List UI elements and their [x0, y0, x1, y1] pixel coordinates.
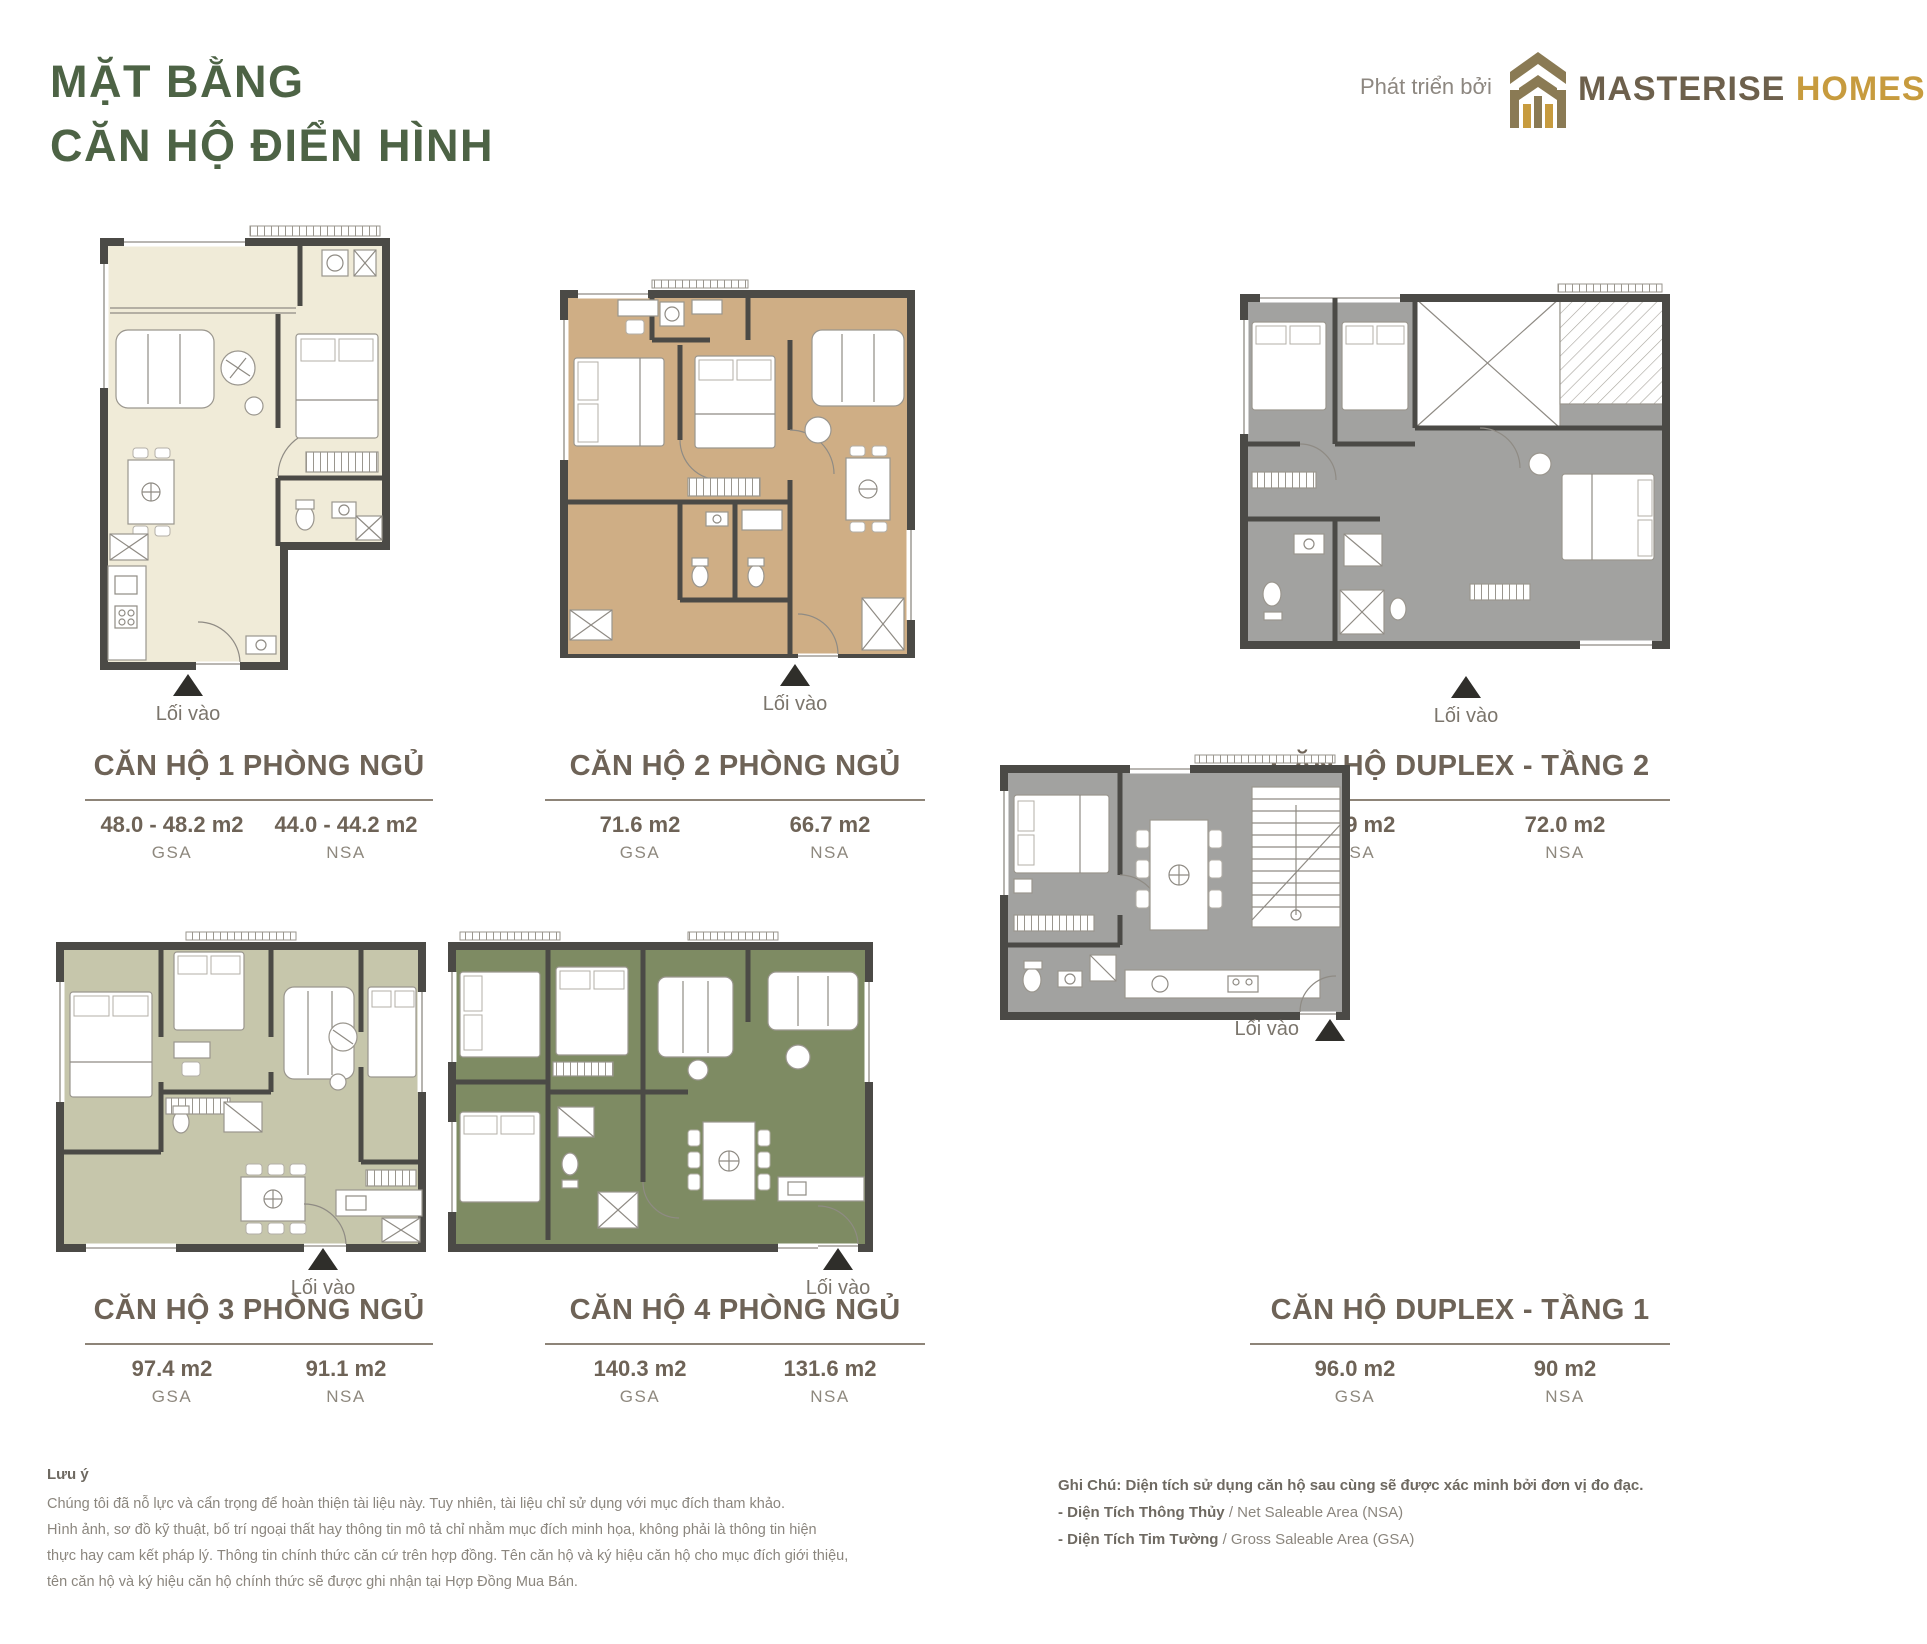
gsa-label: GSA — [85, 843, 259, 863]
nsa-label: NSA — [259, 1387, 433, 1407]
disclaimer-line: Chúng tôi đã nỗ lực và cẩn trọng để hoàn… — [47, 1491, 807, 1517]
entry-arrow-icon — [1315, 1019, 1345, 1041]
gsa-column: 96.0 m2 GSA — [1250, 1356, 1460, 1407]
nsa-column: 90 m2 NSA — [1460, 1356, 1670, 1407]
brochure-page: MẶT BẰNG CĂN HỘ ĐIỂN HÌNH Phát triển bởi… — [0, 0, 1927, 1644]
legend-item-nsa-desc: / Net Saleable Area (NSA) — [1225, 1504, 1403, 1521]
nsa-label: NSA — [735, 843, 925, 863]
brand-name-primary: MASTERISE — [1578, 70, 1785, 108]
entry-label: Lối vào — [156, 703, 221, 726]
nsa-column: 66.7 m2 NSA — [735, 812, 925, 863]
gsa-column: 48.0 - 48.2 m2 GSA — [85, 812, 259, 863]
plan-title-rule — [1250, 1343, 1670, 1345]
nsa-column: 91.1 m2 NSA — [259, 1356, 433, 1407]
entry-label: Lối vào — [1235, 1018, 1300, 1041]
entry-marker-1br: Lối vào — [128, 674, 248, 726]
gsa-value: 140.3 m2 — [545, 1356, 735, 1382]
plan-areas-1br: 48.0 - 48.2 m2 GSA 44.0 - 44.2 m2 NSA — [85, 812, 433, 863]
nsa-value: 44.0 - 44.2 m2 — [259, 812, 433, 838]
entry-arrow-icon — [1451, 676, 1481, 698]
gsa-value: 97.4 m2 — [85, 1356, 259, 1382]
plan-title-1br: CĂN HỘ 1 PHÒNG NGỦ — [85, 750, 433, 783]
nsa-label: NSA — [259, 843, 433, 863]
gsa-column: 140.3 m2 GSA — [545, 1356, 735, 1407]
legend-item-gsa-desc: / Gross Saleable Area (GSA) — [1218, 1531, 1414, 1548]
entry-label: Lối vào — [1434, 705, 1499, 728]
nsa-column: 72.0 m2 NSA — [1460, 812, 1670, 863]
plan-areas-3br: 97.4 m2 GSA 91.1 m2 NSA — [85, 1356, 433, 1407]
gsa-column: 71.6 m2 GSA — [545, 812, 735, 863]
gsa-value: 48.0 - 48.2 m2 — [85, 812, 259, 838]
nsa-value: 131.6 m2 — [735, 1356, 925, 1382]
plan-areas-duplex1: 96.0 m2 GSA 90 m2 NSA — [1250, 1356, 1670, 1407]
floor-plan-3br — [56, 930, 426, 1252]
legend-item-gsa: - Diện Tích Tim Tường / Gross Saleable A… — [1058, 1526, 1878, 1553]
floor-plan-duplex2 — [1240, 282, 1670, 649]
floor-plan-2br — [560, 278, 915, 658]
nsa-label: NSA — [1460, 843, 1670, 863]
page-title: MẶT BẰNG CĂN HỘ ĐIỂN HÌNH — [50, 50, 494, 178]
floor-plan-duplex1 — [1000, 753, 1350, 1020]
brand-name-secondary: HOMES — [1796, 70, 1926, 108]
legend-note: Ghi Chú: Diện tích sử dụng căn hộ sau cù… — [1058, 1472, 1878, 1553]
entry-arrow-icon — [780, 664, 810, 686]
legend-item-nsa: - Diện Tích Thông Thủy / Net Saleable Ar… — [1058, 1499, 1878, 1526]
plan-title-rule — [85, 799, 433, 801]
disclaimer-line: Hình ảnh, sơ đồ kỹ thuật, bố trí ngoại t… — [47, 1517, 807, 1543]
disclaimer-note: Lưu ý Chúng tôi đã nỗ lực và cẩn trọng đ… — [47, 1466, 807, 1595]
entry-marker-3br: Lối vào — [263, 1248, 383, 1300]
entry-arrow-icon — [173, 674, 203, 696]
entry-marker-2br: Lối vào — [735, 664, 855, 716]
nsa-label: NSA — [735, 1387, 925, 1407]
gsa-label: GSA — [1250, 1387, 1460, 1407]
entry-label: Lối vào — [763, 693, 828, 716]
entry-arrow-icon — [308, 1248, 338, 1270]
gsa-column: 97.4 m2 GSA — [85, 1356, 259, 1407]
legend-item-nsa-term: - Diện Tích Thông Thủy — [1058, 1504, 1225, 1521]
nsa-value: 90 m2 — [1460, 1356, 1670, 1382]
gsa-value: 71.6 m2 — [545, 812, 735, 838]
plan-areas-2br: 71.6 m2 GSA 66.7 m2 NSA — [545, 812, 925, 863]
nsa-value: 91.1 m2 — [259, 1356, 433, 1382]
plan-title-duplex1: CĂN HỘ DUPLEX - TẦNG 1 — [1250, 1294, 1670, 1327]
plan-title-rule — [545, 799, 925, 801]
disclaimer-line: tên căn hộ và ký hiệu căn hộ chính thức … — [47, 1569, 807, 1595]
nsa-column: 131.6 m2 NSA — [735, 1356, 925, 1407]
plan-title-rule — [85, 1343, 433, 1345]
disclaimer-heading: Lưu ý — [47, 1466, 807, 1483]
nsa-column: 44.0 - 44.2 m2 NSA — [259, 812, 433, 863]
entry-marker-duplex2: Lối vào — [1406, 676, 1526, 728]
legend-item-gsa-term: - Diện Tích Tim Tường — [1058, 1531, 1218, 1548]
brand-wordmark: MASTERISE HOMES — [1578, 70, 1926, 109]
floor-plan-1br — [100, 224, 390, 670]
gsa-label: GSA — [85, 1387, 259, 1407]
nsa-label: NSA — [1460, 1387, 1670, 1407]
entry-marker-4br: Lối vào — [778, 1248, 898, 1300]
floor-plan-4br — [448, 930, 873, 1252]
developer-label: Phát triển bởi — [1360, 74, 1492, 100]
masterise-logo-icon — [1510, 50, 1566, 128]
plan-title-2br: CĂN HỘ 2 PHÒNG NGỦ — [545, 750, 925, 783]
gsa-label: GSA — [545, 1387, 735, 1407]
disclaimer-line: thực hay cam kết pháp lý. Thông tin chín… — [47, 1543, 807, 1569]
legend-heading: Ghi Chú: Diện tích sử dụng căn hộ sau cù… — [1058, 1472, 1878, 1499]
nsa-value: 66.7 m2 — [735, 812, 925, 838]
plan-title-4br: CĂN HỘ 4 PHÒNG NGỦ — [545, 1294, 925, 1327]
entry-marker-duplex1: Lối vào — [1185, 1018, 1345, 1041]
gsa-value: 96.0 m2 — [1250, 1356, 1460, 1382]
nsa-value: 72.0 m2 — [1460, 812, 1670, 838]
plan-areas-4br: 140.3 m2 GSA 131.6 m2 NSA — [545, 1356, 925, 1407]
plan-title-rule — [545, 1343, 925, 1345]
gsa-label: GSA — [545, 843, 735, 863]
entry-arrow-icon — [823, 1248, 853, 1270]
plan-title-3br: CĂN HỘ 3 PHÒNG NGỦ — [85, 1294, 433, 1327]
